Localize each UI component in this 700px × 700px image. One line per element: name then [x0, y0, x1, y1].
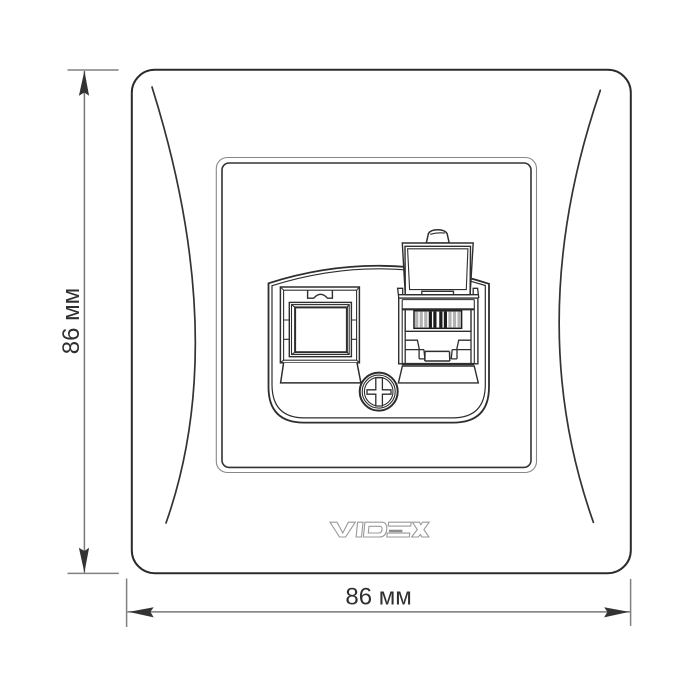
svg-text:86 мм: 86 мм — [58, 288, 85, 354]
svg-text:86 мм: 86 мм — [345, 583, 411, 610]
